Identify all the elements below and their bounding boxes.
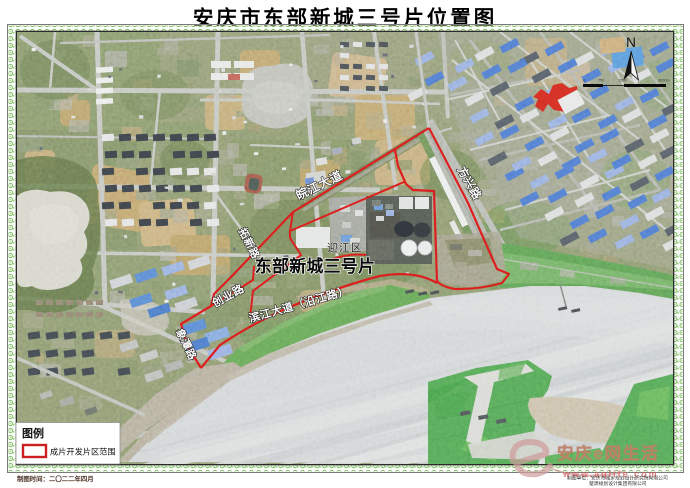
svg-text:750: 750 (598, 79, 604, 83)
svg-text:成片开发片区范围: 成片开发片区范围 (50, 447, 116, 457)
svg-text:制图单位：安庆市城乡规划设计研究院有限公司: 制图单位：安庆市城乡规划设计研究院有限公司 (567, 475, 668, 482)
svg-text:楚源规划设计集团有限公司: 楚源规划设计集团有限公司 (589, 480, 647, 487)
svg-text:制图时间：二〇二二年四月: 制图时间：二〇二二年四月 (17, 474, 94, 483)
svg-text:东部新城三号片: 东部新城三号片 (255, 256, 375, 276)
svg-text:0: 0 (583, 79, 585, 83)
svg-text:3000m: 3000m (658, 79, 670, 83)
svg-text:图例: 图例 (22, 426, 44, 440)
svg-text:安庆e网生活: 安庆e网生活 (557, 443, 659, 463)
svg-text:迎江区: 迎江区 (327, 242, 363, 254)
svg-text:N: N (626, 35, 636, 50)
svg-text:1500: 1500 (618, 79, 626, 83)
